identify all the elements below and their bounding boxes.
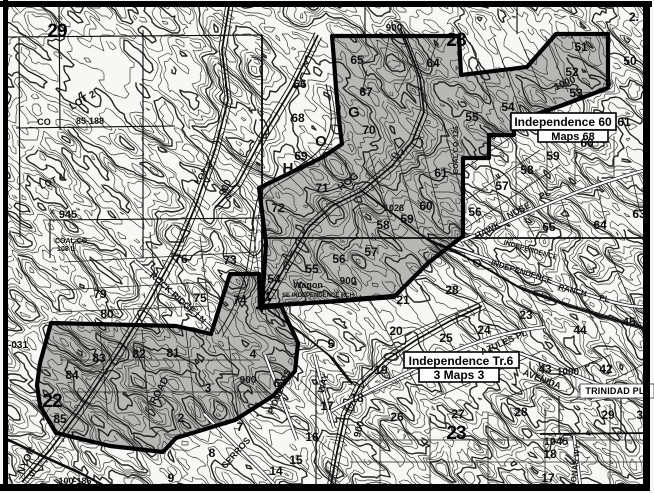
svg-text:9: 9 (168, 471, 175, 485)
svg-text:4: 4 (250, 347, 257, 361)
svg-text:Independence 60: Independence 60 (514, 115, 612, 129)
svg-text:16: 16 (305, 430, 319, 444)
svg-text:1028: 1028 (384, 203, 404, 213)
svg-text:COAL CO.: COAL CO. (55, 238, 89, 245)
svg-text:61: 61 (617, 115, 631, 129)
svg-text:H: H (283, 160, 294, 177)
svg-text:108 L: 108 L (57, 246, 76, 253)
svg-text:COAL CO. 136: COAL CO. 136 (453, 126, 460, 174)
svg-text:900: 900 (386, 23, 403, 34)
svg-text:1045: 1045 (544, 436, 568, 448)
svg-text:945: 945 (59, 209, 77, 221)
svg-text:59: 59 (546, 149, 560, 163)
svg-text:25: 25 (439, 331, 453, 345)
svg-text:23: 23 (519, 308, 533, 322)
svg-text:28: 28 (514, 405, 528, 419)
svg-text:x: x (50, 207, 55, 216)
svg-text:O: O (315, 133, 327, 150)
svg-text:900: 900 (340, 276, 357, 287)
svg-text:29: 29 (47, 21, 67, 42)
svg-text:84: 84 (65, 368, 79, 382)
svg-text:60: 60 (419, 199, 433, 213)
svg-text:8: 8 (209, 446, 216, 460)
svg-text:CO: CO (37, 117, 51, 127)
svg-text:3: 3 (205, 381, 212, 395)
svg-text:56: 56 (468, 205, 482, 219)
svg-text:59: 59 (400, 212, 414, 226)
svg-text:45: 45 (622, 315, 636, 329)
svg-text:65: 65 (350, 53, 364, 67)
svg-text:21: 21 (396, 293, 410, 307)
svg-text:54: 54 (501, 100, 515, 114)
svg-text:54: 54 (267, 272, 281, 286)
svg-text:68: 68 (291, 111, 305, 125)
svg-text:15: 15 (289, 453, 303, 467)
svg-text:PL: PL (599, 293, 611, 304)
svg-text:53: 53 (569, 86, 583, 100)
svg-text:83: 83 (92, 351, 106, 365)
svg-text:5: 5 (328, 337, 335, 351)
svg-text:85: 85 (53, 412, 67, 426)
svg-text:G: G (348, 104, 360, 121)
svg-text:58: 58 (376, 218, 390, 232)
svg-text:66: 66 (293, 77, 307, 91)
svg-text:26: 26 (390, 410, 404, 424)
svg-text:900: 900 (240, 375, 257, 386)
svg-text:67: 67 (359, 85, 373, 99)
svg-text:24: 24 (477, 323, 491, 337)
svg-text:51: 51 (574, 40, 588, 54)
svg-text:19: 19 (374, 363, 388, 377)
svg-text:65: 65 (542, 220, 556, 234)
svg-text:2.: 2. (629, 10, 639, 24)
svg-text:23: 23 (446, 423, 466, 444)
svg-text:61: 61 (434, 166, 448, 180)
svg-text:73: 73 (223, 253, 237, 267)
svg-text:22: 22 (42, 391, 62, 412)
svg-text:58: 58 (520, 163, 534, 177)
svg-text:81: 81 (166, 346, 180, 360)
svg-text:56: 56 (332, 252, 346, 266)
svg-text:74: 74 (233, 293, 247, 307)
svg-text:Independence Tr.6: Independence Tr.6 (409, 354, 514, 368)
svg-text:2: 2 (178, 411, 185, 425)
svg-text:28: 28 (445, 283, 459, 297)
svg-text:82: 82 (132, 347, 146, 361)
svg-text:18: 18 (350, 391, 364, 405)
svg-text:50: 50 (623, 54, 637, 68)
svg-text:TRINIDAD PL: TRINIDAD PL (585, 386, 644, 396)
svg-text:17: 17 (541, 471, 555, 485)
svg-text:71: 71 (315, 181, 329, 195)
svg-text:18: 18 (543, 447, 557, 461)
svg-text:76: 76 (174, 252, 188, 266)
svg-text:14: 14 (269, 464, 283, 478)
svg-text:75: 75 (193, 291, 207, 305)
svg-text:-031: -031 (8, 340, 28, 351)
svg-text:7: 7 (237, 420, 244, 434)
svg-text:64: 64 (593, 218, 607, 232)
svg-text:70: 70 (362, 123, 376, 137)
svg-text:28: 28 (446, 30, 466, 51)
svg-text:1000: 1000 (557, 367, 580, 378)
svg-text:55: 55 (465, 110, 479, 124)
svg-text:80: 80 (100, 307, 114, 321)
svg-text:SE INDEPENDENCE RCH: SE INDEPENDENCE RCH (282, 293, 354, 299)
svg-text:44: 44 (573, 323, 587, 337)
svg-text:17: 17 (320, 399, 334, 413)
svg-text:27: 27 (451, 407, 465, 421)
svg-text:79: 79 (93, 287, 107, 301)
svg-text:60: 60 (580, 136, 594, 150)
svg-text:57: 57 (364, 245, 378, 259)
svg-text:69: 69 (294, 149, 308, 163)
svg-text:29: 29 (601, 408, 615, 422)
svg-text:55: 55 (305, 262, 319, 276)
svg-text:3 Maps 3: 3 Maps 3 (434, 368, 485, 382)
svg-text:Wagon: Wagon (293, 280, 323, 290)
svg-text:57: 57 (495, 179, 509, 193)
svg-text:42: 42 (599, 362, 613, 376)
svg-text:20: 20 (389, 324, 403, 338)
svg-text:64: 64 (426, 56, 440, 70)
svg-text:72: 72 (271, 201, 285, 215)
svg-text:85-188: 85-188 (76, 116, 104, 126)
